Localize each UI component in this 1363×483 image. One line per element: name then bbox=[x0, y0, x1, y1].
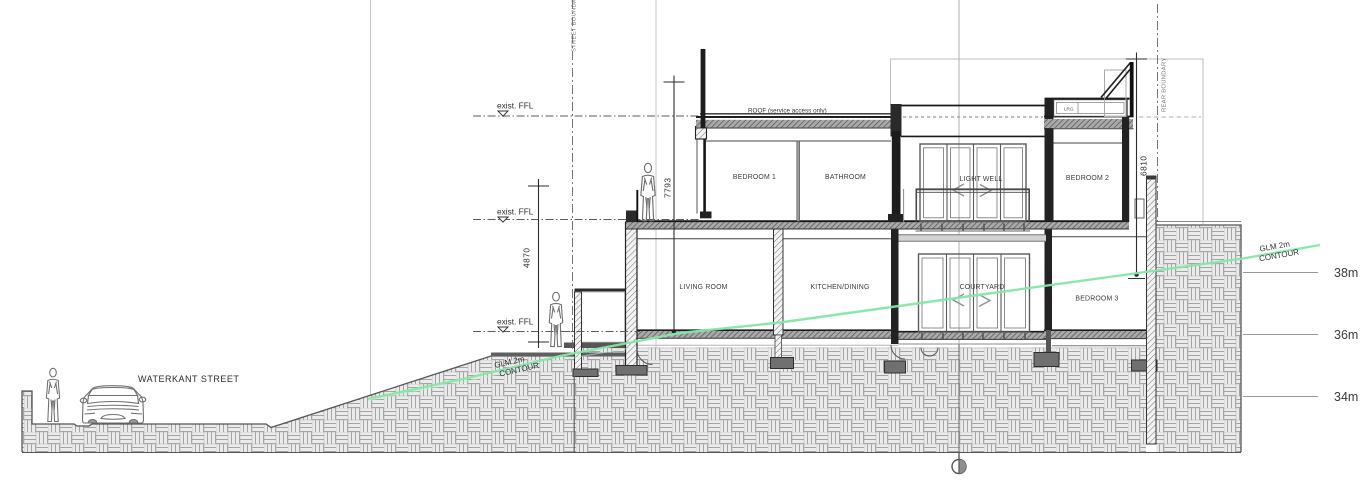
svg-text:LRG: LRG bbox=[1064, 107, 1074, 112]
svg-text:ROOF (service access only): ROOF (service access only) bbox=[748, 108, 827, 115]
svg-text:WATERKANT STREET: WATERKANT STREET bbox=[138, 374, 239, 384]
svg-text:BEDROOM 3: BEDROOM 3 bbox=[1075, 296, 1118, 303]
svg-text:REAR BOUNDARY: REAR BOUNDARY bbox=[1162, 57, 1168, 112]
svg-text:BATHROOM: BATHROOM bbox=[825, 174, 866, 181]
svg-text:LIVING ROOM: LIVING ROOM bbox=[679, 284, 727, 291]
svg-text:34m: 34m bbox=[1334, 390, 1358, 404]
svg-text:BEDROOM 1: BEDROOM 1 bbox=[733, 174, 776, 181]
svg-text:KITCHEN/DINING: KITCHEN/DINING bbox=[810, 284, 869, 291]
svg-text:exist. FFL: exist. FFL bbox=[497, 101, 534, 111]
svg-text:LIGHT WELL: LIGHT WELL bbox=[960, 176, 1003, 183]
svg-text:exist. FFL: exist. FFL bbox=[497, 207, 534, 217]
svg-text:COURTYARD: COURTYARD bbox=[960, 284, 1005, 291]
svg-text:4870: 4870 bbox=[522, 248, 532, 268]
svg-text:7793: 7793 bbox=[663, 178, 673, 198]
svg-text:BEDROOM 2: BEDROOM 2 bbox=[1066, 175, 1109, 182]
svg-text:STREET BOUNDARY: STREET BOUNDARY bbox=[572, 0, 578, 52]
svg-text:exist. FFL: exist. FFL bbox=[497, 317, 534, 327]
svg-text:GLM 2mCONTOUR: GLM 2mCONTOUR bbox=[1257, 238, 1300, 263]
svg-text:6810: 6810 bbox=[1139, 156, 1149, 176]
svg-text:36m: 36m bbox=[1334, 328, 1358, 342]
svg-text:38m: 38m bbox=[1334, 266, 1358, 280]
